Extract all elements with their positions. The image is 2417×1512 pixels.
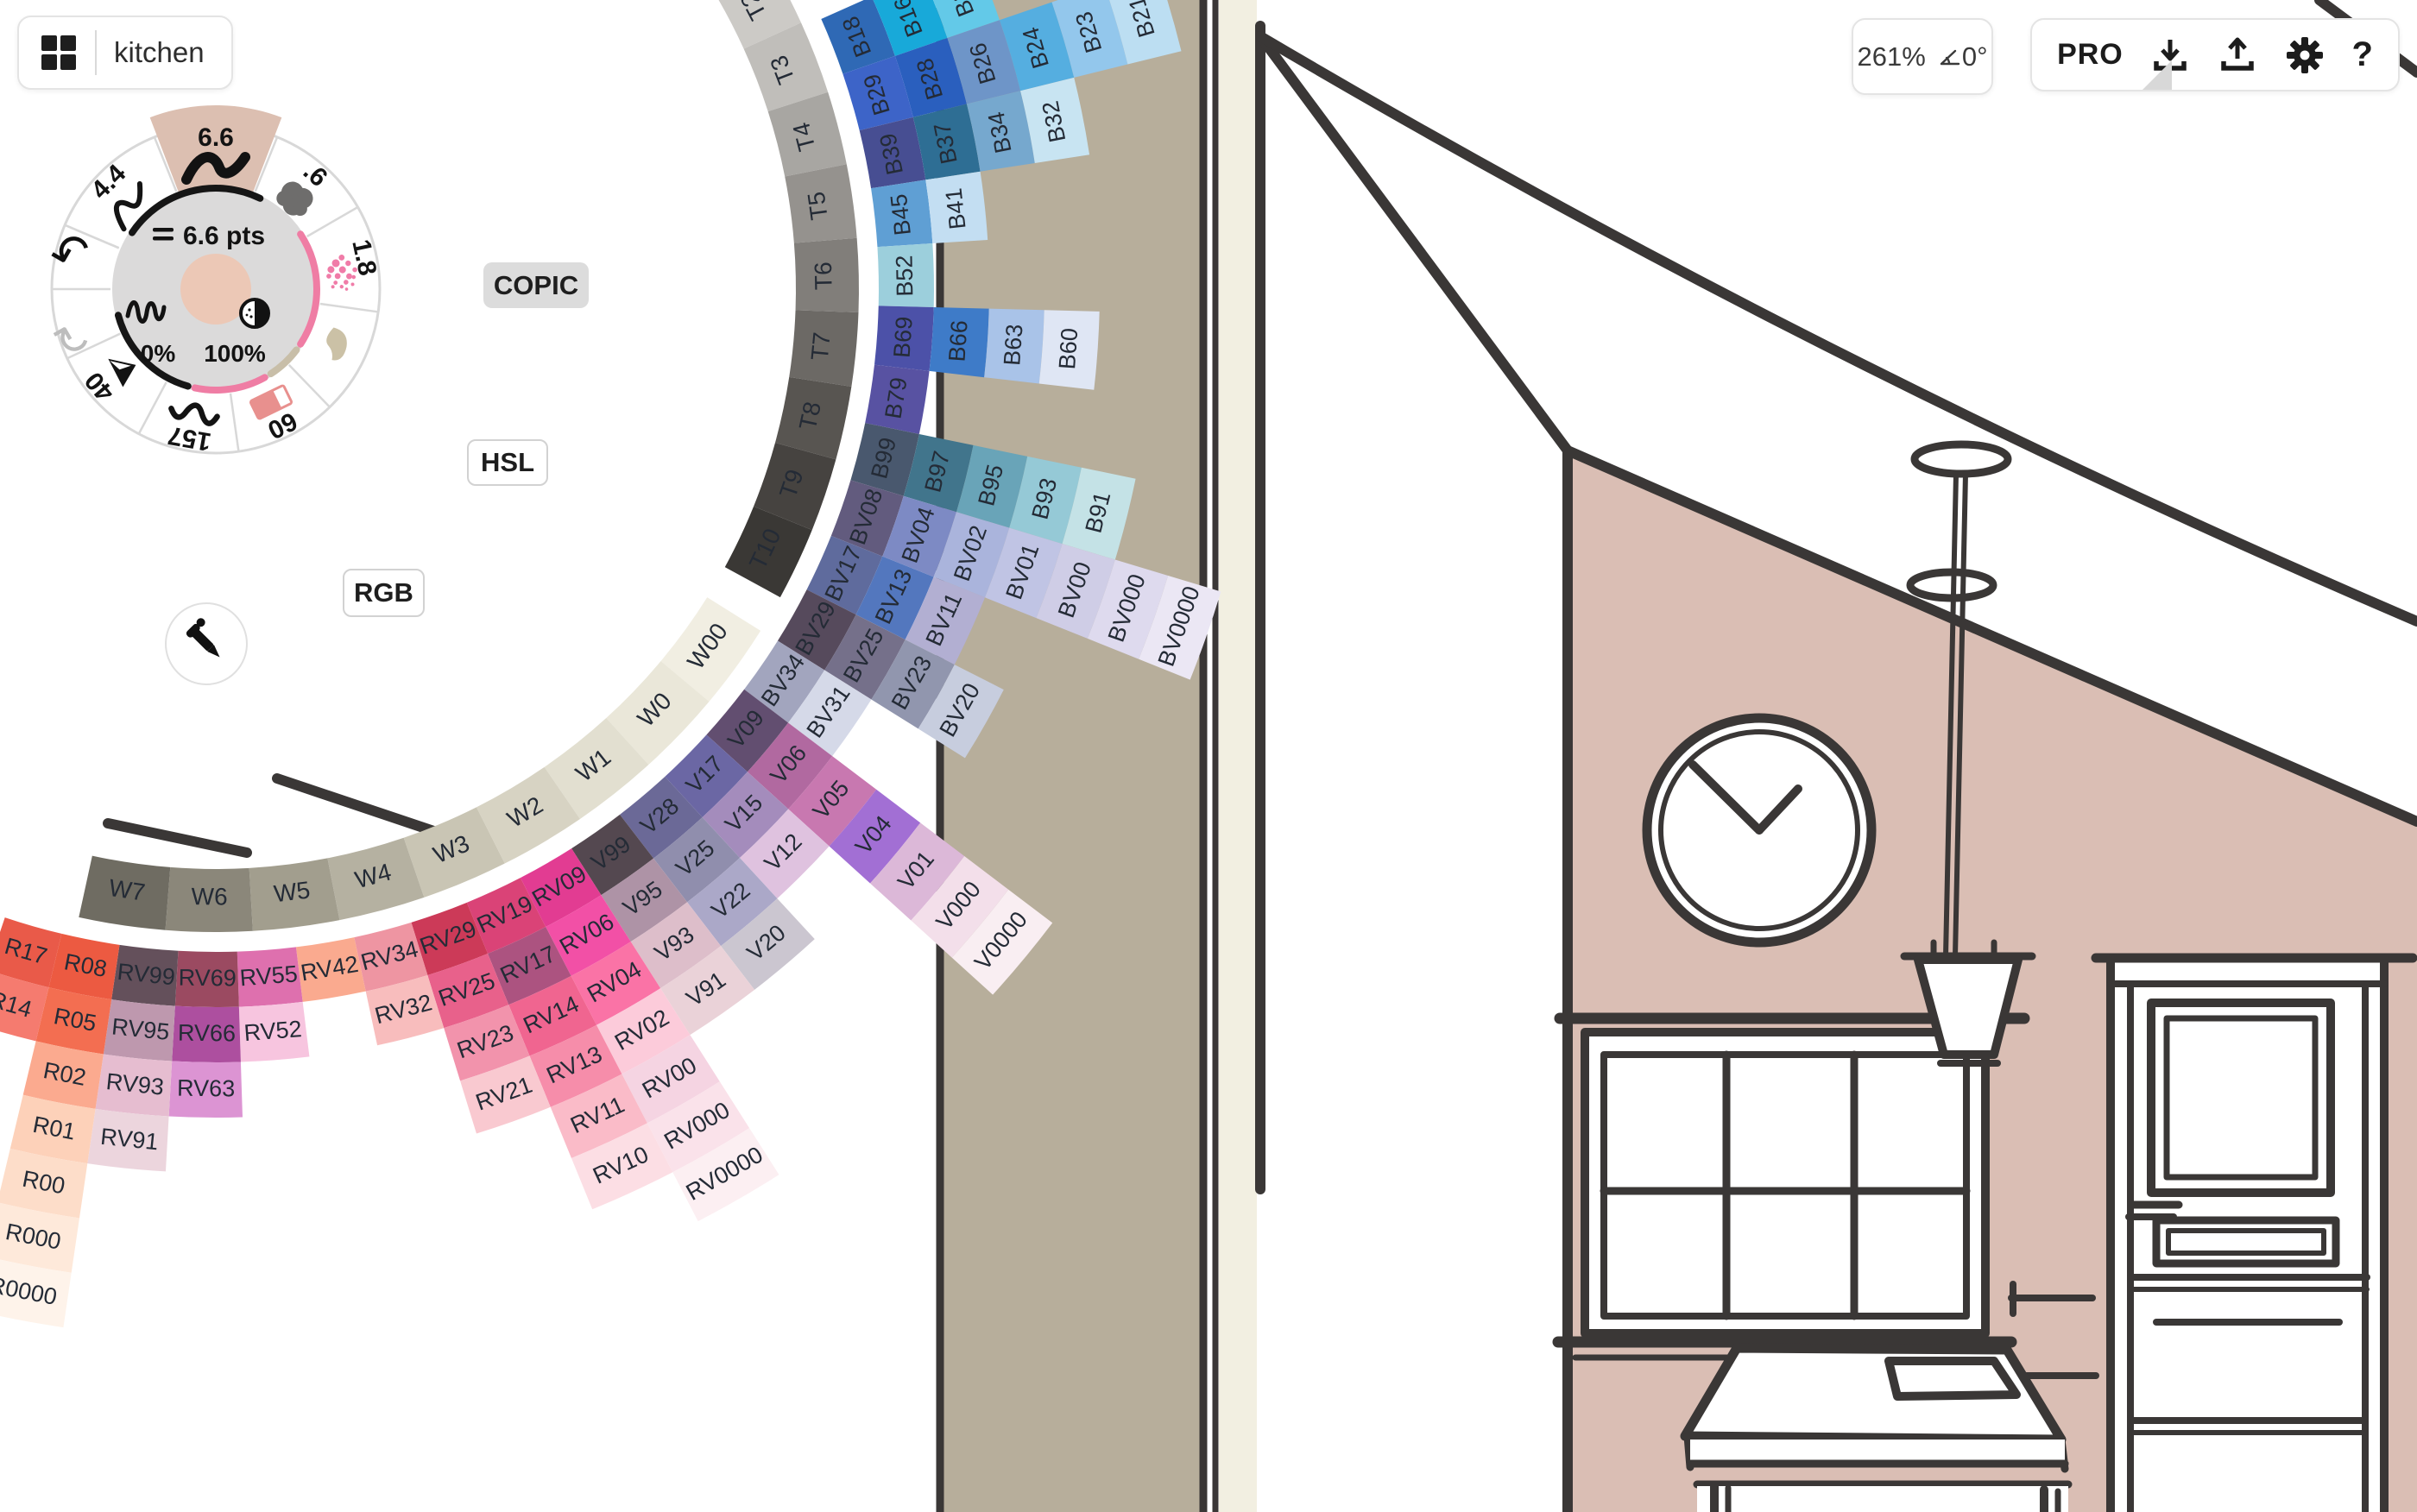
swatch-label: B60 [1054,327,1082,370]
document-menu-button[interactable]: kitchen [17,16,233,90]
clock-sketch [1647,718,1871,942]
swatch-label: B52 [892,255,918,297]
swatch-label: B69 [889,316,918,359]
table-sketch [1685,1348,2068,1512]
swatch-label: T6 [810,261,837,290]
export-button[interactable] [2217,35,2258,76]
swatch-label: RV63 [177,1075,235,1102]
gear-icon [2285,35,2325,75]
document-title: kitchen [114,36,205,69]
view-status-panel[interactable]: 261% 0° [1852,18,1993,95]
kitchen-sketch [108,0,2417,1512]
swatch-label: T5 [803,190,833,222]
stroke-width-value: 6.6 pts [183,222,265,250]
window-sketch [1558,1018,2024,1358]
swatch-label: B41 [941,186,971,230]
color-mode-rgb[interactable]: RGB [343,569,425,617]
opacity-value[interactable]: 100% [204,340,266,367]
swatch-label: B45 [886,192,916,236]
door-sketch [2096,958,2413,1512]
tool-sector-value-pen: 6.6 [198,123,234,152]
zoom-level: 261% [1858,41,1926,72]
swatch-label: W7 [107,874,147,906]
roof-line [1260,36,2417,621]
swatch-label: B63 [999,324,1027,367]
wall-cream-strip [1219,0,1257,1512]
angle-icon [1940,47,1960,66]
swatch-label: B66 [943,319,972,362]
rotation-angle: 0° [1962,41,1988,72]
main-toolbar: PRO [2030,18,2400,91]
drawing-canvas[interactable]: T1T2T3T4T5T6T7T8T9T10W00W0W1W2W3W4W5W6W7… [0,0,2417,1512]
swatch-label: RV66 [178,1020,236,1047]
swatch-label: RV55 [239,961,299,991]
counter-stroke [108,823,247,853]
settings-button[interactable] [2284,35,2325,76]
swatch-label: RV52 [243,1016,303,1046]
grid-menu-icon [40,34,78,72]
smoothing-value[interactable]: 0% [141,340,176,367]
gable-line [1260,36,1568,450]
panel-corner-fold [2142,60,2172,90]
opacity-icon [241,299,268,327]
divider [95,30,97,75]
export-icon [2218,35,2257,75]
swatch-label: RV69 [179,965,237,992]
swatch-label: W6 [191,883,227,910]
color-mode-copic[interactable]: COPIC [483,262,589,308]
color-mode-hsl[interactable]: HSL [467,439,548,486]
swatch-label: T7 [806,331,836,362]
help-button[interactable]: ? [2351,35,2372,74]
eyedropper-button[interactable] [165,602,248,685]
swatch-label: W5 [272,876,312,907]
pro-button[interactable]: PRO [2057,38,2124,72]
eyedropper-icon [179,616,234,671]
